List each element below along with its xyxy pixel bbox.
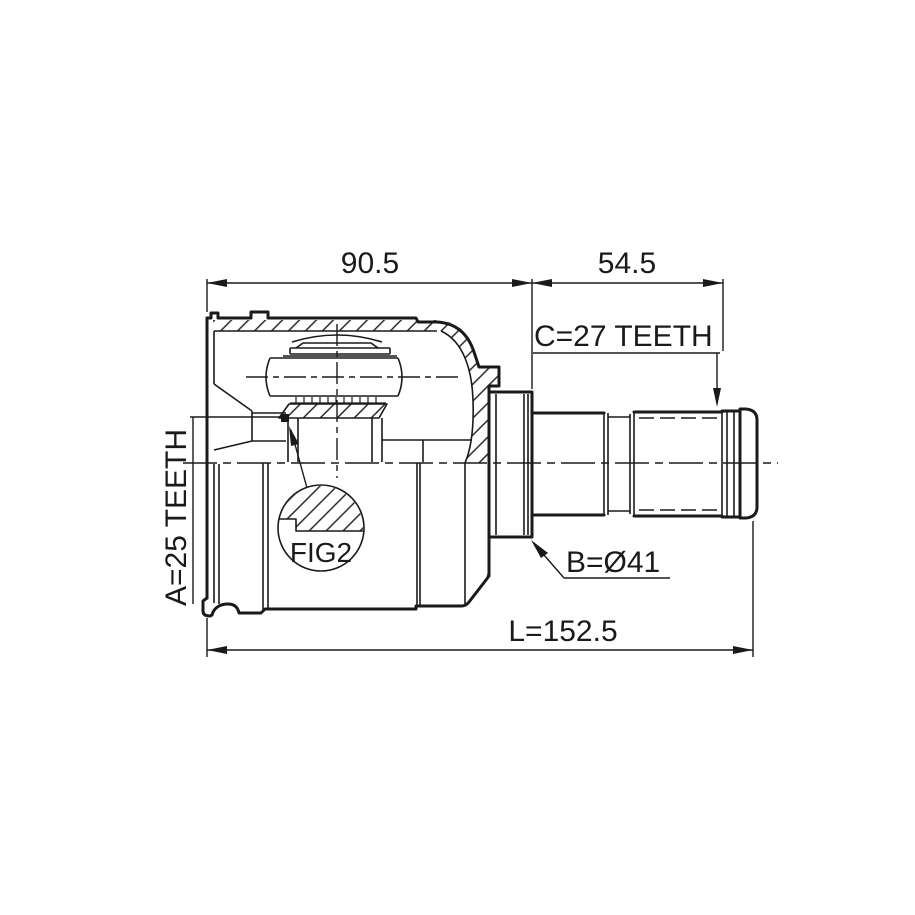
dim-housing-width-label: 90.5	[341, 247, 399, 280]
outer-spline-label: C=27 TEETH	[534, 320, 713, 353]
drawing-svg: 90.5 54.5 C=27 TEETH A=25 TEETH B=Ø41 L=…	[0, 0, 915, 915]
dim-overall-length-label: L=152.5	[508, 615, 617, 648]
inner-spline-label: A=25 TEETH	[160, 429, 193, 606]
detail-ref-label: FIG2	[290, 537, 352, 568]
datum-point-marker	[281, 414, 289, 422]
dim-stub-length-label: 54.5	[598, 247, 656, 280]
diameter-label: B=Ø41	[566, 546, 660, 579]
snap-ring-wedge	[279, 404, 387, 418]
canvas-background	[0, 0, 915, 915]
